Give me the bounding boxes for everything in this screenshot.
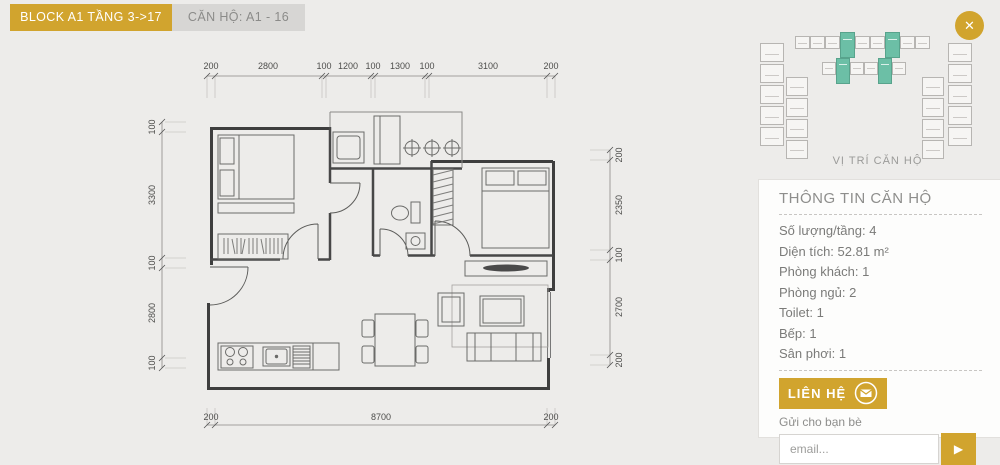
info-row-living: Phòng khách: 1 xyxy=(779,262,982,283)
svg-text:2800: 2800 xyxy=(258,61,278,71)
minimap-unit[interactable] xyxy=(825,36,840,49)
dim-right-labels: 200 2350 100 2700 200 xyxy=(614,147,624,367)
send-email-button[interactable]: ▶ xyxy=(941,433,976,465)
bathroom-fixtures xyxy=(392,202,426,249)
minimap-unit-highlighted[interactable] xyxy=(878,58,892,84)
svg-text:100: 100 xyxy=(419,61,434,71)
svg-text:100: 100 xyxy=(365,61,380,71)
floor-plan: 200 2800 100 1200 100 1300 100 3100 200 … xyxy=(130,40,675,438)
info-row-quantity: Số lượng/tầng: 4 xyxy=(779,221,982,242)
info-row-kitchen: Bếp: 1 xyxy=(779,324,982,345)
apartment-info-panel: THÔNG TIN CĂN HỘ Số lượng/tầng: 4 Diện t… xyxy=(758,179,1000,438)
svg-text:100: 100 xyxy=(147,119,157,134)
minimap-unit[interactable] xyxy=(850,62,864,75)
minimap-unit[interactable] xyxy=(948,64,972,83)
dim-top xyxy=(204,73,558,98)
walls xyxy=(207,112,555,390)
minimap-unit[interactable] xyxy=(760,106,784,125)
info-row-balcony: Sân phơi: 1 xyxy=(779,344,982,365)
svg-text:2800: 2800 xyxy=(147,303,157,323)
minimap-unit[interactable] xyxy=(922,119,944,138)
contact-button-label: LIÊN HỆ xyxy=(788,386,846,401)
minimap-unit[interactable] xyxy=(810,36,825,49)
minimap-unit-highlighted[interactable] xyxy=(885,32,900,58)
minimap-unit[interactable] xyxy=(822,62,836,75)
svg-text:100: 100 xyxy=(147,255,157,270)
minimap-unit[interactable] xyxy=(948,85,972,104)
minimap-unit[interactable] xyxy=(760,85,784,104)
minimap-caption: VỊ TRÍ CĂN HỘ xyxy=(755,155,1000,167)
living-furniture xyxy=(438,261,548,361)
bedroom1-furniture xyxy=(218,135,294,259)
contact-button[interactable]: LIÊN HỆ xyxy=(779,378,887,409)
minimap-unit[interactable] xyxy=(760,127,784,146)
dim-left-labels: 100 3300 100 2800 100 xyxy=(147,119,157,370)
svg-text:1300: 1300 xyxy=(390,61,410,71)
svg-text:3100: 3100 xyxy=(478,61,498,71)
minimap-unit[interactable] xyxy=(786,119,808,138)
svg-text:2350: 2350 xyxy=(614,195,624,215)
svg-text:200: 200 xyxy=(543,61,558,71)
floor-plan-drawing: 200 2800 100 1200 100 1300 100 3100 200 … xyxy=(130,40,675,438)
minimap-unit[interactable] xyxy=(786,98,808,117)
minimap-unit-highlighted[interactable] xyxy=(836,58,850,84)
svg-text:8700: 8700 xyxy=(371,412,391,422)
minimap-unit[interactable] xyxy=(864,62,878,75)
dining-set xyxy=(362,314,428,366)
minimap-unit[interactable] xyxy=(760,43,784,62)
svg-text:100: 100 xyxy=(316,61,331,71)
svg-text:2700: 2700 xyxy=(614,297,624,317)
minimap-unit[interactable] xyxy=(786,77,808,96)
svg-text:3300: 3300 xyxy=(147,185,157,205)
send-arrow-icon: ▶ xyxy=(954,442,963,456)
dim-left xyxy=(159,119,186,371)
minimap-unit[interactable] xyxy=(948,43,972,62)
info-row-area: Diện tích: 52.81 m² xyxy=(779,242,982,263)
apartment-detail-page: { "colors": { "gold": "#d1a42e", "teal":… xyxy=(0,0,1000,438)
info-row-bedrooms: Phòng ngủ: 2 xyxy=(779,283,982,304)
minimap-unit[interactable] xyxy=(795,36,810,49)
info-row-toilet: Toilet: 1 xyxy=(779,303,982,324)
kitchen-counter xyxy=(218,343,339,370)
dim-top-labels: 200 2800 100 1200 100 1300 100 3100 200 xyxy=(203,61,558,71)
share-label: Gửi cho bạn bè xyxy=(779,415,982,429)
bedroom2-furniture xyxy=(433,168,549,248)
info-panel-title: THÔNG TIN CĂN HỘ xyxy=(779,190,982,215)
share-row: ▶ xyxy=(779,433,982,465)
svg-text:1200: 1200 xyxy=(338,61,358,71)
tab-block[interactable]: BLOCK A1 TẦNG 3->17 xyxy=(10,4,172,31)
minimap-unit[interactable] xyxy=(915,36,930,49)
svg-text:200: 200 xyxy=(203,61,218,71)
svg-text:100: 100 xyxy=(147,355,157,370)
envelope-icon xyxy=(854,381,878,405)
minimap-unit[interactable] xyxy=(870,36,885,49)
floor-locator-minimap: VỊ TRÍ CĂN HỘ xyxy=(755,15,1000,167)
minimap-unit-highlighted[interactable] xyxy=(840,32,855,58)
minimap-unit[interactable] xyxy=(922,77,944,96)
minimap-unit[interactable] xyxy=(948,106,972,125)
minimap-unit[interactable] xyxy=(948,127,972,146)
svg-text:200: 200 xyxy=(614,147,624,162)
svg-text:100: 100 xyxy=(614,247,624,262)
email-input[interactable] xyxy=(779,434,939,464)
tab-unit[interactable]: CĂN HỘ: A1 - 16 xyxy=(172,4,305,31)
svg-text:200: 200 xyxy=(543,412,558,422)
minimap-unit[interactable] xyxy=(922,98,944,117)
svg-text:200: 200 xyxy=(203,412,218,422)
minimap-unit[interactable] xyxy=(855,36,870,49)
info-rows: Số lượng/tầng: 4 Diện tích: 52.81 m² Phò… xyxy=(779,215,982,371)
svg-text:200: 200 xyxy=(614,352,624,367)
dim-right xyxy=(590,147,613,368)
minimap-unit[interactable] xyxy=(892,62,906,75)
minimap-unit[interactable] xyxy=(760,64,784,83)
laundry-fixtures xyxy=(333,116,461,164)
minimap-unit[interactable] xyxy=(900,36,915,49)
dim-bottom-labels: 200 8700 200 xyxy=(203,412,558,422)
